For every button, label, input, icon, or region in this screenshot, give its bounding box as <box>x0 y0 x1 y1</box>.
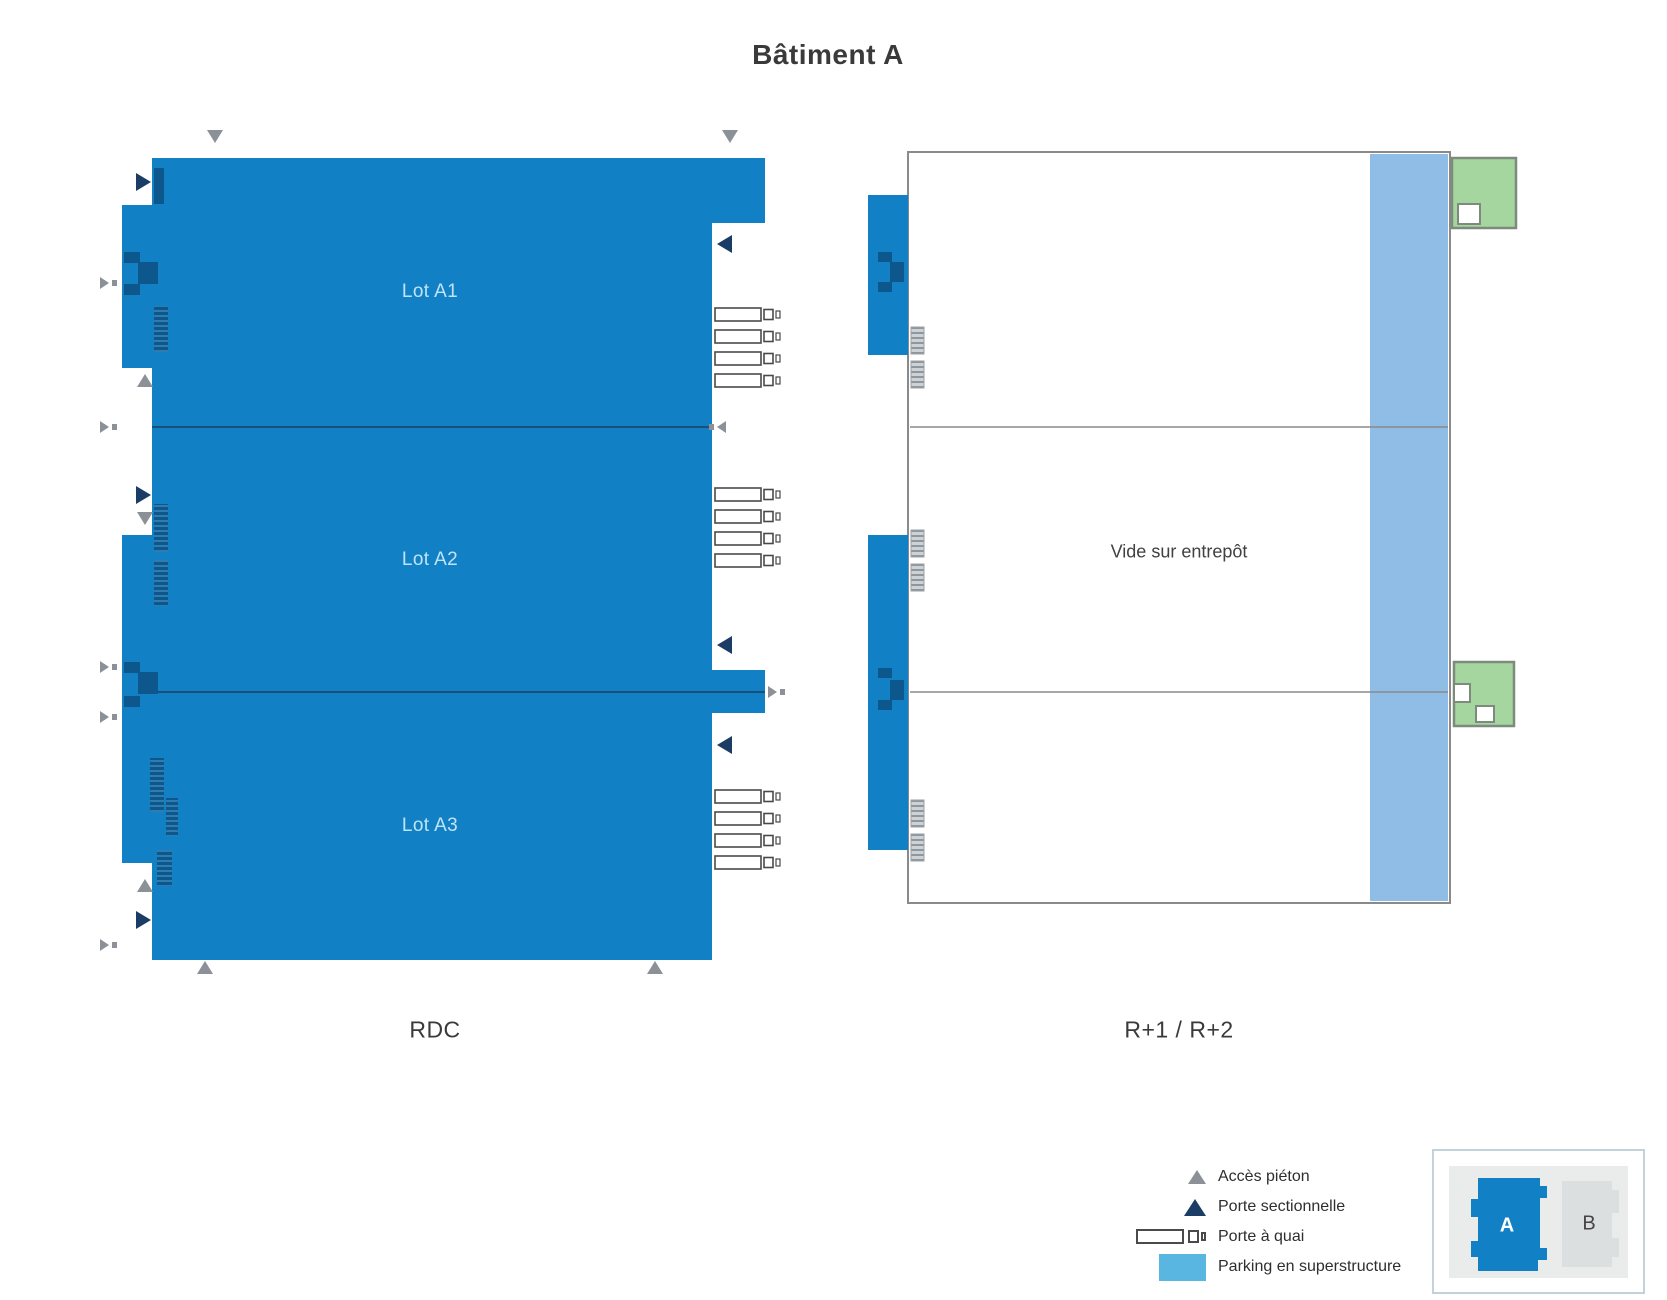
pedestrian-access-icon <box>768 686 785 698</box>
lot-a2-label: Lot A2 <box>402 549 458 571</box>
inset-building-b-label: B <box>1582 1213 1595 1236</box>
legend-label: Accès piéton <box>1218 1168 1310 1186</box>
sectional-door-icon <box>717 235 732 253</box>
legend-row-parking: Parking en superstructure <box>1040 1252 1470 1282</box>
lot-a3-label: Lot A3 <box>402 815 458 837</box>
upper-floor-outline <box>908 152 1450 903</box>
dock-door-icon <box>715 834 780 847</box>
dock-door-icon <box>715 510 780 523</box>
dock-door-icon <box>715 308 780 321</box>
floorplan-page: Bâtiment A Lot A1 Lot A2 Lot A3 Vide sur… <box>0 0 1667 1300</box>
pedestrian-access-icon <box>100 421 117 433</box>
pedestrian-access-icon <box>100 711 117 723</box>
sectional-door-icon <box>717 636 732 654</box>
stair-icon <box>911 361 924 388</box>
sectional-door-icon <box>1184 1199 1206 1216</box>
sectional-door-icon <box>136 486 151 504</box>
pedestrian-access-icon <box>207 130 223 143</box>
pedestrian-access-icon <box>137 879 153 892</box>
dock-door-icon <box>715 790 780 803</box>
stair-icon <box>911 530 924 557</box>
pedestrian-access-icon <box>197 961 213 974</box>
pedestrian-access-icon <box>100 661 117 673</box>
legend-label: Parking en superstructure <box>1218 1258 1401 1276</box>
sectional-door-icon <box>717 736 732 754</box>
dock-door-icon <box>715 374 780 387</box>
dock-door-icon <box>1136 1229 1206 1245</box>
legend-row-sectional: Porte sectionnelle <box>1040 1192 1470 1222</box>
rdc-floor-label: RDC <box>409 1017 460 1044</box>
parking-swatch-icon <box>1159 1254 1206 1281</box>
legend-label: Porte sectionnelle <box>1218 1198 1345 1216</box>
pedestrian-access-icon <box>137 374 153 387</box>
dock-door-icon <box>715 488 780 501</box>
stair-icon <box>911 834 924 861</box>
upper-floor-label: R+1 / R+2 <box>1124 1017 1233 1044</box>
dock-door-icon <box>715 856 780 869</box>
dock-door-icon <box>715 352 780 365</box>
floorplan-drawing <box>0 0 1667 1300</box>
pedestrian-access-icon <box>722 130 738 143</box>
dock-door-icon <box>715 532 780 545</box>
legend-row-dock: Porte à quai <box>1040 1222 1470 1252</box>
lot-a1-label: Lot A1 <box>402 281 458 303</box>
pedestrian-access-icon <box>137 512 153 525</box>
dock-door-icon <box>715 554 780 567</box>
stair-icon <box>911 564 924 591</box>
page-title: Bâtiment A <box>752 39 904 71</box>
pedestrian-access-icon <box>1188 1170 1206 1184</box>
inset-building-a-label: A <box>1500 1215 1514 1238</box>
stair-icon <box>911 327 924 354</box>
legend: Accès piéton Porte sectionnelle Porte à … <box>1040 1162 1470 1282</box>
parking-strip <box>1370 154 1448 901</box>
dock-door-icon <box>715 330 780 343</box>
dock-doors-rdc <box>715 308 780 869</box>
void-over-warehouse-label: Vide sur entrepôt <box>1111 542 1248 563</box>
sectional-door-icon <box>136 911 151 929</box>
dock-door-icon <box>715 812 780 825</box>
stair-icon <box>911 800 924 827</box>
pedestrian-access-icon <box>100 277 117 289</box>
pedestrian-access-icon <box>647 961 663 974</box>
sectional-door-icon <box>136 173 151 191</box>
legend-row-pedestrian: Accès piéton <box>1040 1162 1470 1192</box>
pedestrian-access-icon <box>100 939 117 951</box>
green-annexes <box>1452 158 1516 726</box>
legend-label: Porte à quai <box>1218 1228 1304 1246</box>
